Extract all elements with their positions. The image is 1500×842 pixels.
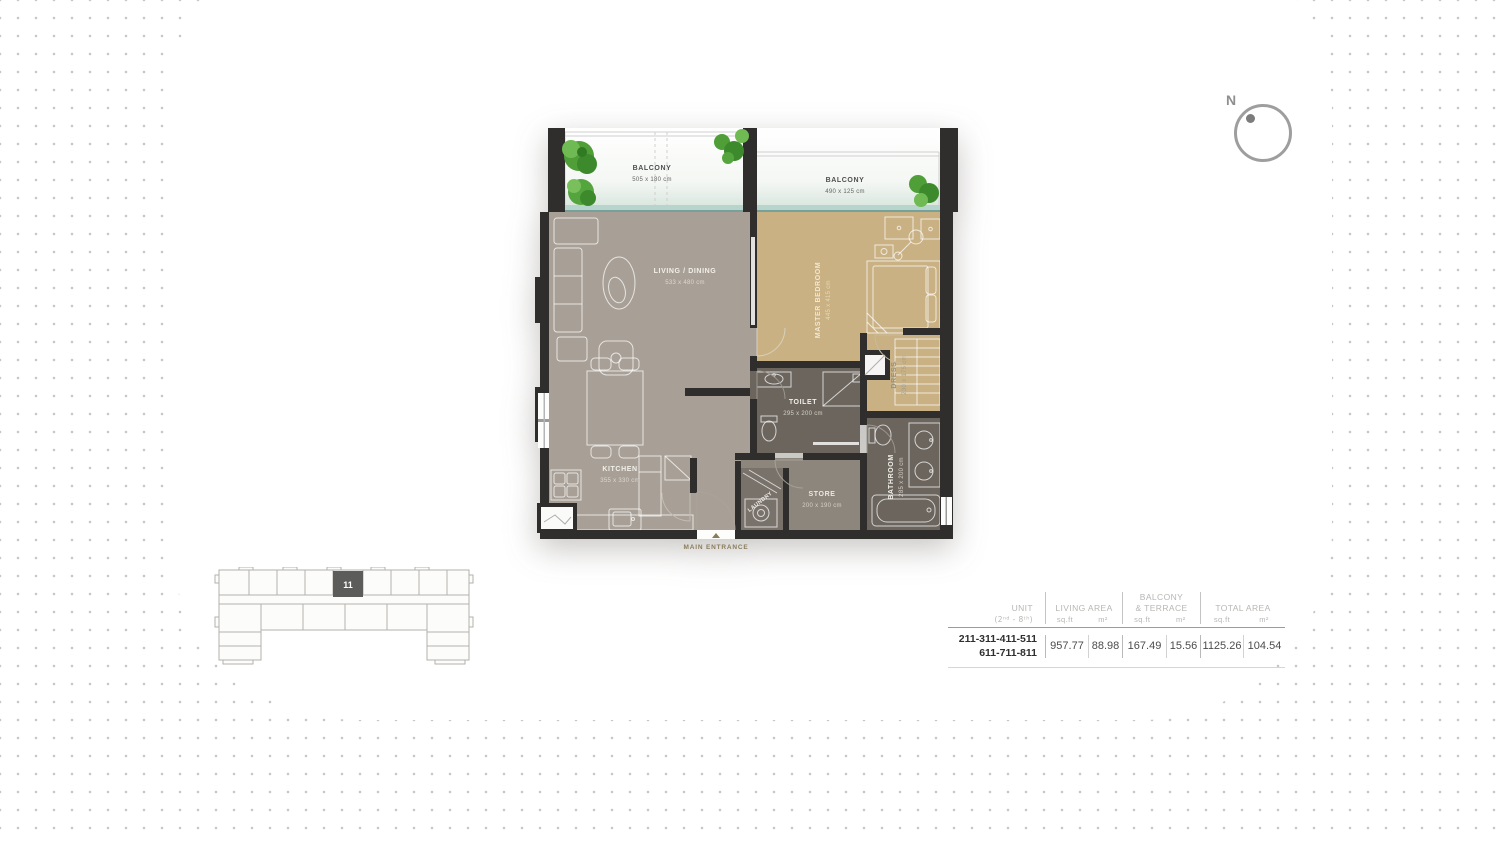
unit-column-header: UNIT (2ⁿᵈ - 8ᵗʰ) xyxy=(948,592,1045,624)
living-m2-value: 88.98 xyxy=(1088,635,1122,658)
compass-north-label: N xyxy=(1226,92,1236,108)
area-table-row: 211-311-411-511 611-711-811 957.77 88.98… xyxy=(948,628,1285,667)
balcony-terrace-header: BALCONY & TERRACE sq.ft m² xyxy=(1122,592,1200,624)
bathroom-dims: 285 x 200 cm xyxy=(899,457,905,497)
kitchen-label: KITCHEN xyxy=(602,466,637,473)
balcony-m2-unit: m² xyxy=(1162,615,1201,624)
floorplan-page: N xyxy=(0,0,1500,842)
compass-north-dot xyxy=(1246,114,1255,123)
living-dining-dims: 533 x 480 cm xyxy=(665,280,705,286)
toilet-label: TOILET xyxy=(789,399,817,406)
balcony-left-label: BALCONY xyxy=(633,165,672,172)
total-sqft-unit: sq.ft xyxy=(1201,615,1243,624)
total-m2-unit: m² xyxy=(1243,615,1285,624)
balcony-left-dims: 505 x 180 cm xyxy=(632,177,672,183)
balcony-right-dims: 490 x 125 cm xyxy=(825,189,865,195)
unit-numbers: 211-311-411-511 611-711-811 xyxy=(948,633,1045,660)
toilet-dims: 295 x 200 cm xyxy=(783,411,823,417)
compass-icon xyxy=(1234,104,1292,162)
balcony-right-label: BALCONY xyxy=(826,177,865,184)
main-entrance-label: MAIN ENTRANCE xyxy=(684,544,749,551)
living-sqft-value: 957.77 xyxy=(1045,635,1088,658)
total-area-header: TOTAL AREA sq.ft m² xyxy=(1200,592,1285,624)
living-dining-label: LIVING / DINING xyxy=(654,268,717,275)
living-m2-unit: m² xyxy=(1084,615,1122,624)
area-table-header: UNIT (2ⁿᵈ - 8ᵗʰ) LIVING AREA sq.ft m² BA… xyxy=(948,592,1285,628)
living-sqft-unit: sq.ft xyxy=(1046,615,1084,624)
balcony-sqft-value: 167.49 xyxy=(1122,635,1166,658)
living-area-header: LIVING AREA sq.ft m² xyxy=(1045,592,1122,624)
bathroom-label: BATHROOM xyxy=(888,454,895,500)
floor-plan: BALCONY 505 x 180 cm BALCONY 490 x 125 c… xyxy=(535,125,965,557)
kitchen-dims: 355 x 330 cm xyxy=(600,478,640,484)
master-bedroom-label: MASTER BEDROOM xyxy=(815,262,822,338)
dress-dims: 230 x 175 cm xyxy=(902,355,908,395)
keyplan-unit-number: 11 xyxy=(343,580,353,590)
balcony-sqft-unit: sq.ft xyxy=(1123,615,1162,624)
store-dims: 200 x 190 cm xyxy=(802,503,842,509)
keyplan: 11 xyxy=(213,567,475,665)
dress-label: DRESS xyxy=(891,361,898,388)
balcony-m2-value: 15.56 xyxy=(1166,635,1200,658)
store-label: STORE xyxy=(809,491,836,498)
total-m2-value: 104.54 xyxy=(1243,635,1285,658)
area-table: UNIT (2ⁿᵈ - 8ᵗʰ) LIVING AREA sq.ft m² BA… xyxy=(948,592,1285,668)
master-bedroom-dims: 445 x 415 cm xyxy=(826,280,832,320)
total-sqft-value: 1125.26 xyxy=(1200,635,1243,658)
